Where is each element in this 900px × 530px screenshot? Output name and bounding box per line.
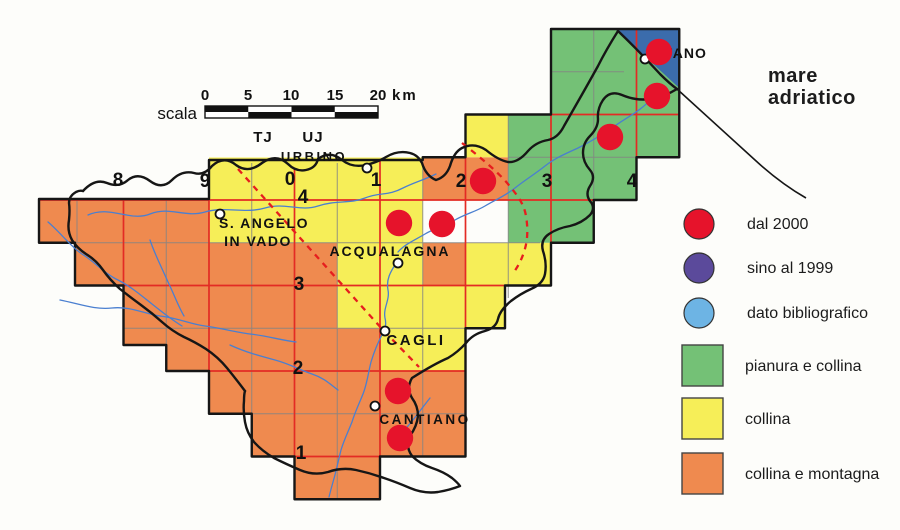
col-label-1: 1 (371, 170, 382, 191)
occurrence-dot (644, 83, 670, 109)
col-label-4: 4 (627, 171, 638, 192)
utm-zone-tj: TJ (253, 129, 273, 146)
col-label-9: 9 (200, 171, 211, 192)
row-label-3: 3 (294, 274, 305, 295)
town-label-acqualagna: ACQUALAGNA (329, 243, 450, 259)
distribution-map-canvas: scala 0 5 10 15 20 km TJ UJ 8 9 0 1 2 3 … (0, 0, 900, 530)
legend-swatch-pianura-collina (682, 345, 723, 386)
town-marker-urbino (363, 164, 372, 173)
row-label-1: 1 (296, 443, 307, 464)
town-marker-cantiano (371, 402, 380, 411)
town-label-cantiano: CANTIANO (379, 412, 470, 427)
scale-tick-15: 15 (327, 87, 344, 104)
col-label-3: 3 (542, 171, 553, 192)
occurrence-dot (646, 39, 672, 65)
legend-label-collina: collina (745, 411, 790, 428)
utm-zone-uj: UJ (302, 129, 323, 146)
col-label-0: 0 (285, 169, 296, 190)
scale-tick-5: 5 (244, 87, 252, 104)
legend-label-dal-2000: dal 2000 (747, 216, 808, 233)
town-label-s-angelo: S. ANGELO (219, 215, 309, 231)
scale-unit: km (392, 87, 418, 104)
scale-tick-20: 20 (370, 87, 387, 104)
occurrence-dot (597, 124, 623, 150)
col-label-8: 8 (113, 170, 124, 191)
legend-label-collina-montagna: collina e montagna (745, 466, 879, 483)
town-label-in-vado: IN VADO (224, 233, 292, 249)
row-label-2: 2 (293, 358, 304, 379)
town-marker-acqualagna (394, 259, 403, 268)
scale-tick-10: 10 (283, 87, 300, 104)
legend-swatch-sino-al-1999 (684, 253, 714, 283)
legend-swatch-collina (682, 398, 723, 439)
occurrence-dot (470, 168, 496, 194)
occurrence-dot (387, 425, 413, 451)
scale-tick-0: 0 (201, 87, 209, 104)
legend-label-sino-al-1999: sino al 1999 (747, 260, 833, 277)
map-page: scala 0 5 10 15 20 km TJ UJ 8 9 0 1 2 3 … (0, 0, 900, 530)
town-label-cagli: CAGLI (386, 332, 445, 349)
sea-label-line2: adriatico (768, 87, 856, 109)
legend-label-dato-bibliografico: dato bibliografico (747, 305, 868, 322)
legend-swatch-dato-bibliografico (684, 298, 714, 328)
town-label-urbino: URBINO (281, 149, 347, 164)
occurrence-dot (429, 211, 455, 237)
row-label-4: 4 (298, 187, 309, 208)
occurrence-dot (385, 378, 411, 404)
scale-label: scala (157, 104, 197, 123)
sea-label-line1: mare (768, 65, 818, 87)
legend-label-pianura-collina: pianura e collina (745, 358, 862, 375)
occurrence-dot (386, 210, 412, 236)
legend-swatch-collina-montagna (682, 453, 723, 494)
legend-swatch-dal-2000 (684, 209, 714, 239)
col-label-2: 2 (456, 171, 467, 192)
